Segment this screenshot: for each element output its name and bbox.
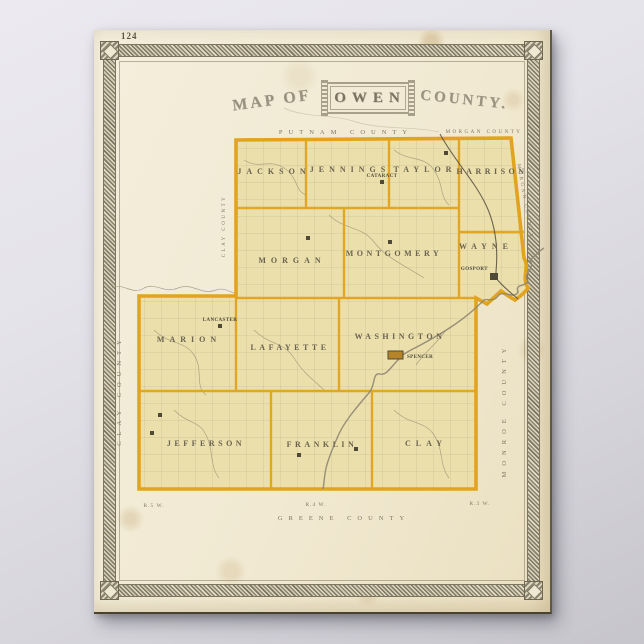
owen-county-map: CATARACT LANCASTER SPENCER GOSPORT JACKS… — [94, 30, 550, 612]
township-label: MORGAN — [258, 256, 325, 265]
town-marker — [306, 236, 310, 240]
town-marker — [218, 324, 222, 328]
town-label: CATARACT — [367, 174, 398, 179]
town-marker — [380, 180, 384, 184]
range-label: R.3 W. — [469, 501, 490, 507]
township-label: FRANKLIN — [287, 440, 358, 449]
county-label-south: GREENE COUNTY — [278, 515, 410, 522]
county-label-west-inner: CLAY COUNTY — [222, 195, 227, 258]
township-label: JEFFERSON — [167, 439, 245, 448]
county-label-east: MONROE COUNTY — [501, 343, 508, 478]
town-marker — [444, 151, 448, 155]
range-label: R.5 W. — [143, 503, 164, 509]
town-label: LANCASTER — [203, 318, 237, 323]
town-marker — [297, 453, 301, 457]
township-label: CLAY — [405, 439, 447, 448]
town-marker-spencer — [388, 351, 403, 359]
township-label: LAFAYETTE — [250, 343, 329, 352]
map-poster: 124 MAP OF OWEN COUNTY. — [94, 30, 552, 614]
town-marker — [158, 413, 162, 417]
town-marker — [150, 431, 154, 435]
township-label: WAYNE — [459, 242, 513, 251]
county-label-north: PUTNAM COUNTY — [279, 129, 413, 136]
township-label: JACKSON — [237, 167, 310, 176]
county-label-northeast-corner: MORGAN COUNTY — [446, 130, 523, 135]
township-label: JENNINGS — [310, 165, 390, 174]
town-marker — [388, 240, 392, 244]
town-label: SPENCER — [407, 355, 433, 360]
town-marker-gosport — [490, 273, 498, 280]
township-label: MONTGOMERY — [346, 249, 443, 258]
county-label-west: CLAY COUNTY — [116, 334, 123, 446]
township-label: MARION — [157, 335, 221, 344]
town-label: GOSPORT — [461, 267, 488, 272]
township-label: WASHINGTON — [355, 332, 446, 341]
range-label: R.4 W. — [305, 502, 326, 508]
photo-background: 124 MAP OF OWEN COUNTY. — [0, 0, 644, 644]
township-label: TAYLOR — [394, 165, 457, 174]
